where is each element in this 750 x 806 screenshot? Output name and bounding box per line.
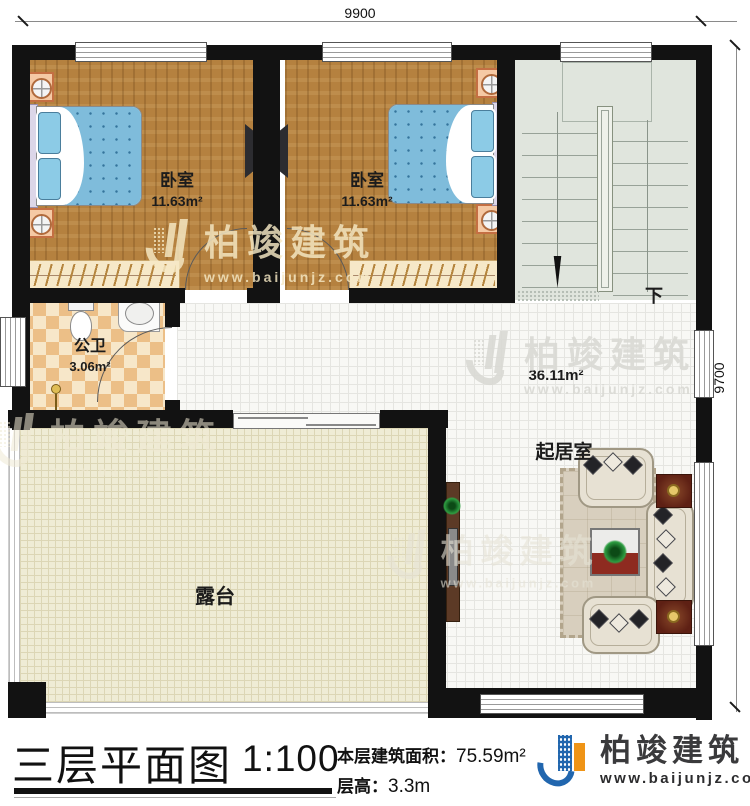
window [0, 317, 26, 387]
tv-icon [448, 528, 458, 586]
wall [23, 288, 185, 303]
wall [380, 410, 448, 428]
drawing-title: 三层平面图 [12, 732, 232, 793]
title-block: 三层平面图 1:100 本层建筑面积：75.59m² 层高：3.3m 柏竣建筑 … [0, 726, 750, 806]
dimension-line-top [15, 21, 737, 22]
wall [428, 428, 446, 688]
side-table [656, 474, 692, 508]
floor-height-value: 3.3m [388, 776, 430, 797]
stair-walkline-left [557, 112, 558, 256]
lamp-icon [667, 610, 680, 623]
lamp-icon [31, 78, 52, 99]
room-area-bathroom: 3.06m² [45, 360, 135, 374]
terrace-corner-pier [8, 682, 46, 718]
pillow [38, 158, 61, 200]
nightstand [26, 72, 54, 102]
dimension-right-value: 9700 [711, 350, 729, 406]
floor-plan-page: 卧室 11.63m² 卧室 11.63m² 公卫 3.06m² 36.11m² … [0, 0, 750, 806]
title-underline [14, 788, 332, 794]
sliding-door-panel [238, 417, 308, 419]
terrace-railing-bottom [8, 700, 430, 714]
title-underline-thin [14, 797, 336, 798]
sliding-door [233, 413, 380, 429]
wall [8, 410, 233, 428]
terrace-floor [20, 428, 430, 702]
wall [349, 288, 497, 303]
floor-area-label: 本层建筑面积： [337, 747, 456, 766]
logo-building-orange [574, 743, 585, 771]
floor-area-value: 75.59m² [456, 746, 526, 767]
window [480, 694, 644, 714]
lamp-icon [31, 214, 52, 235]
lamp-icon [667, 484, 680, 497]
stairs-down-label: 下 [640, 287, 668, 307]
room-area-bedroom-left: 11.63m² [122, 194, 232, 209]
plant-icon [603, 540, 627, 564]
stair-bottom-dotted-strip [517, 290, 599, 302]
toilet-bowl [70, 311, 92, 341]
dimension-line-right [736, 48, 737, 712]
window [322, 42, 452, 62]
floor-drain-icon [51, 384, 61, 394]
plant-icon [443, 497, 461, 515]
wardrobe [26, 260, 180, 290]
dimension-tick [729, 39, 740, 50]
pillow [471, 110, 494, 152]
hangers-icon [353, 264, 495, 286]
dimension-tick [729, 701, 740, 712]
hangers-icon [30, 264, 176, 286]
room-label-bedroom-left: 卧室 [132, 172, 222, 191]
room-area-bedroom-right: 11.63m² [312, 194, 422, 209]
room-label-bedroom-right: 卧室 [322, 172, 412, 191]
room-area-living: 36.11m² [501, 368, 611, 385]
wall [165, 303, 180, 327]
nightstand [26, 208, 54, 238]
floor-height-row: 层高：3.3m [337, 772, 430, 798]
dimension-top-value: 9900 [327, 5, 393, 21]
room-label-bathroom: 公卫 [50, 338, 130, 356]
floor-area-row: 本层建筑面积：75.59m² [337, 742, 526, 768]
room-label-living: 起居室 [509, 443, 619, 464]
company-url: www.baijunjz.com [600, 770, 750, 787]
stair-walkline-right [647, 120, 648, 292]
company-logo-icon [536, 731, 592, 791]
company-name: 柏竣建筑 [600, 735, 750, 766]
wall [253, 45, 280, 303]
stair-divider-wall [597, 106, 613, 292]
tv-icon [280, 124, 288, 178]
pillow [471, 156, 494, 198]
side-table [656, 600, 692, 634]
company-logo: 柏竣建筑 www.baijunjz.com [536, 731, 750, 791]
stair-flight-right [613, 120, 688, 296]
window [560, 42, 652, 62]
tv-icon [245, 124, 253, 178]
floor-height-label: 层高： [337, 777, 388, 796]
room-label-terrace: 露台 [170, 586, 260, 608]
sink-basin [125, 302, 154, 325]
sliding-door-panel [306, 424, 376, 426]
wall [247, 288, 253, 303]
wardrobe [349, 260, 499, 290]
wall [497, 45, 515, 303]
window [75, 42, 207, 62]
logo-building-blue [558, 735, 572, 771]
window [694, 462, 714, 646]
drawing-scale: 1:100 [242, 738, 340, 780]
pillow [38, 112, 61, 154]
